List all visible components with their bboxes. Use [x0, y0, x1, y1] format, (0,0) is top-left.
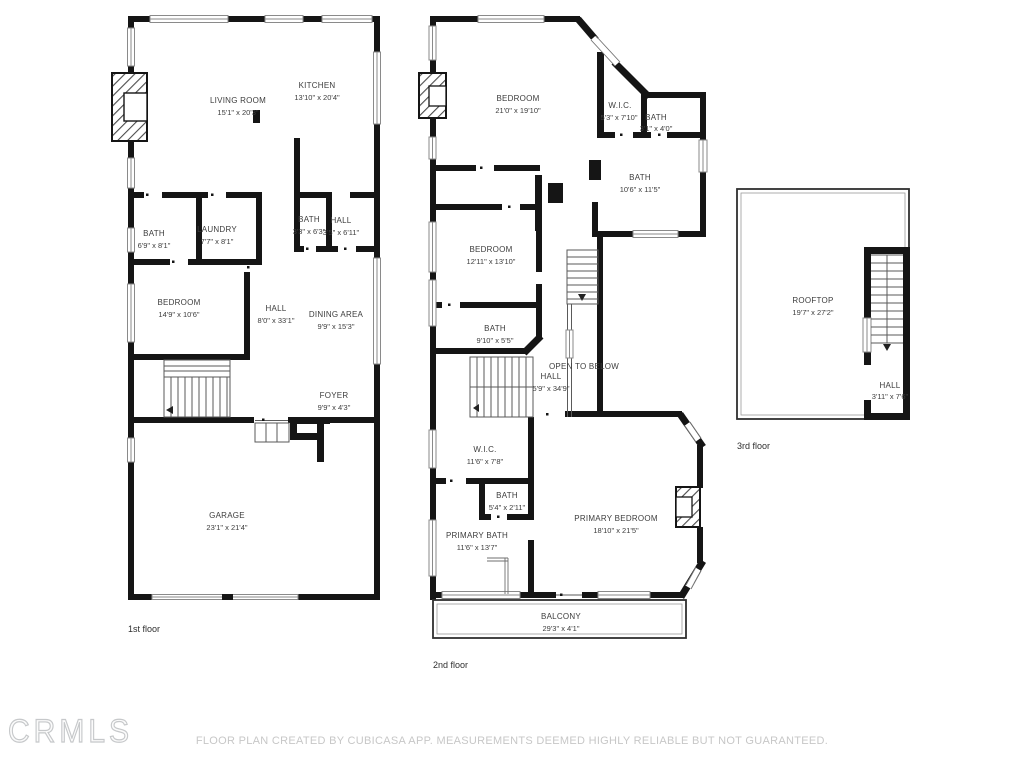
room-dims-bedroom-1: 14'9" x 10'6"	[158, 310, 199, 319]
room-label-primary-bedroom: PRIMARY BEDROOM	[574, 514, 658, 523]
room-dims-hall-2: 8'0" x 33'1"	[258, 316, 295, 325]
room-label-hall-3f: HALL	[879, 381, 900, 390]
room-label-foyer: FOYER	[320, 391, 349, 400]
room-label-bath-2: BATH	[298, 215, 320, 224]
room-dims-garage: 23'1" x 21'4"	[206, 523, 247, 532]
room-label-hall-2f: HALL	[540, 372, 561, 381]
fireplace-icon	[419, 73, 446, 118]
room-dims-balcony: 29'3" x 4'1"	[543, 624, 580, 633]
room-dims-bedroom-2f-1: 21'0" x 19'10"	[495, 106, 541, 115]
room-dims-bedroom-2f-2: 12'11" x 13'10"	[467, 257, 516, 266]
fireplace-icon	[676, 487, 700, 527]
floor-label-1: 1st floor	[128, 624, 160, 634]
room-label-wic-2: W.I.C.	[473, 445, 496, 454]
shower-glass	[487, 558, 508, 594]
room-label-rooftop: ROOFTOP	[792, 296, 833, 305]
room-dims-primary-bedroom: 18'10" x 21'5"	[593, 526, 639, 535]
room-label-laundry: LAUNDRY	[197, 225, 237, 234]
entry-steps	[255, 423, 289, 442]
room-dims-wic-1: 5'3" x 7'10"	[601, 113, 638, 122]
room-dims-dining-area: 9'9" x 15'3"	[318, 322, 355, 331]
room-dims-laundry: 7'7" x 8'1"	[201, 237, 234, 246]
room-label-hall-1: HALL	[330, 216, 351, 225]
room-dims-primary-bath: 11'6" x 13'7"	[457, 543, 498, 552]
fireplace-icon	[112, 73, 147, 141]
room-dims-bath-1: 6'9" x 8'1"	[138, 241, 171, 250]
room-dims-wic-2: 11'6" x 7'8"	[467, 457, 504, 466]
room-dims-hall-1: 3'5" x 6'11"	[323, 228, 360, 237]
room-dims-rooftop: 19'7" x 27'2"	[792, 308, 833, 317]
room-label-wic-1: W.I.C.	[608, 101, 631, 110]
room-label-living-room: LIVING ROOM	[210, 96, 266, 105]
floor-labels: 1st floor 2nd floor 3rd floor	[128, 441, 770, 670]
room-dims-living-room: 15'1" x 20'3"	[217, 108, 258, 117]
room-label-bedroom-1: BEDROOM	[157, 298, 200, 307]
room-dims-foyer: 9'9" x 4'3"	[318, 403, 351, 412]
room-label-garage: GARAGE	[209, 511, 245, 520]
second-floor-stairs-up	[567, 250, 598, 304]
room-dims-kitchen: 13'10" x 20'4"	[294, 93, 340, 102]
room-label-bath-1: BATH	[143, 229, 165, 238]
room-dims-bath-mid: 9'10" x 5'5"	[477, 336, 514, 345]
room-label-balcony: BALCONY	[541, 612, 581, 621]
room-label-dining-area: DINING AREA	[309, 310, 364, 319]
room-dims-bath-tiny: 5'4" x 2'11"	[489, 503, 526, 512]
second-floor-stairs-down	[470, 357, 533, 417]
floor-label-2: 2nd floor	[433, 660, 468, 670]
floor-label-3: 3rd floor	[737, 441, 770, 451]
first-floor-staircase	[164, 360, 230, 417]
room-label-primary-bath: PRIMARY BATH	[446, 531, 508, 540]
room-label-bath-tiny: BATH	[496, 491, 518, 500]
room-dims-bath-small: 3'1" x 4'0"	[640, 124, 673, 133]
room-dims-hall-2f: 5'9" x 34'9"	[533, 384, 570, 393]
room-label-bath-right: BATH	[629, 173, 651, 182]
room-label-bedroom-2f-1: BEDROOM	[496, 94, 539, 103]
open-to-below-rail	[566, 304, 573, 417]
room-label-bedroom-2f-2: BEDROOM	[469, 245, 512, 254]
room-dims-hall-3f: 3'11" x 7'6"	[872, 392, 909, 401]
room-label-hall-2: HALL	[265, 304, 286, 313]
room-label-bath-small: BATH	[645, 113, 667, 122]
room-label-bath-mid: BATH	[484, 324, 506, 333]
footer-disclaimer: FLOOR PLAN CREATED BY CUBICASA APP. MEAS…	[0, 735, 1024, 747]
floor-plan-canvas: LIVING ROOM 15'1" x 20'3" KITCHEN 13'10"…	[0, 0, 1024, 768]
third-floor-window	[863, 318, 871, 352]
room-label-kitchen: KITCHEN	[299, 81, 336, 90]
room-label-open-to-below: OPEN TO BELOW	[549, 362, 619, 371]
third-floor-stairs	[871, 255, 903, 351]
room-dims-bath-2: 3'3" x 6'3"	[293, 227, 326, 236]
room-dims-bath-right: 10'6" x 11'5"	[620, 185, 661, 194]
